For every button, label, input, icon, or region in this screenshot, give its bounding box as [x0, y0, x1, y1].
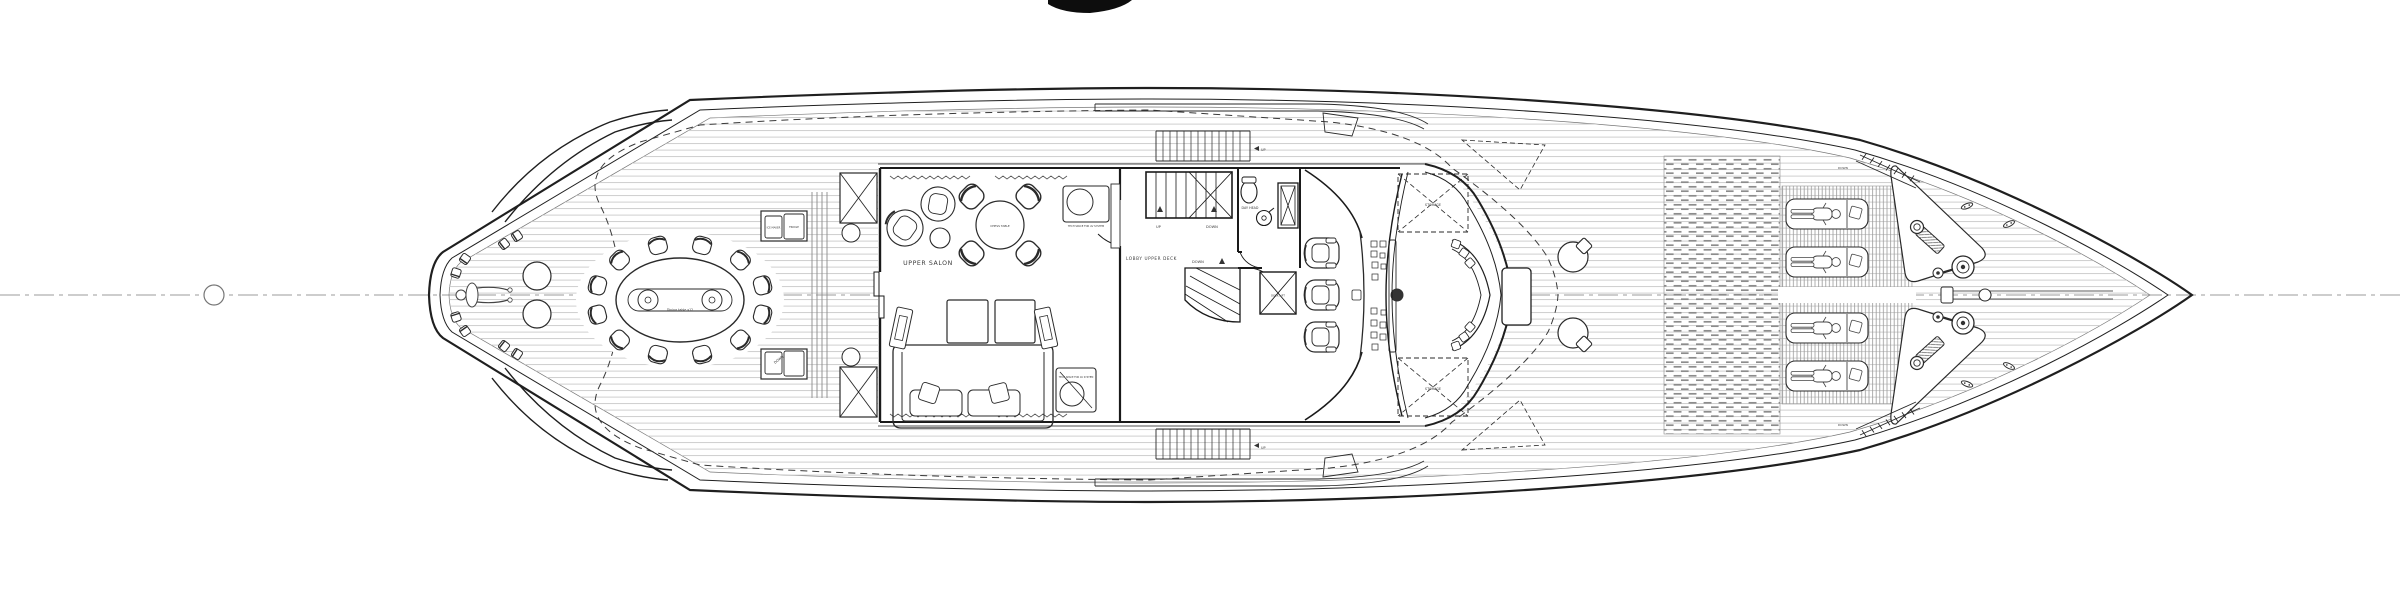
bow-down-label: DOWN [1838, 423, 1848, 427]
upper-salon-label: UPPER SALON [903, 260, 953, 267]
aft-door-leaf [879, 296, 884, 318]
aft-door-leaf [874, 272, 879, 296]
dining-table [616, 258, 744, 342]
ice-maker-label: ICE MAKER [767, 226, 781, 230]
chess-table-label: CHESS TABLE [990, 224, 1010, 228]
dining-area: Dining table x12 [576, 232, 784, 368]
sunbathing-area [1664, 156, 1916, 434]
center-walkway [1778, 287, 1916, 303]
sun-lounger-with-person [1786, 313, 1868, 343]
side-stair-up-label: UP [1261, 148, 1266, 152]
sun-lounger-with-person [1786, 361, 1868, 391]
stair-up-label: UP [1156, 225, 1162, 229]
sun-lounger-with-person [1786, 199, 1868, 229]
helm-chair [1305, 322, 1340, 352]
coffee-table [947, 300, 988, 343]
sunpad-mat-grid [1664, 156, 1780, 434]
storage-label: STORAGE [1425, 387, 1441, 391]
dining-table-label: Dining table x12 [667, 308, 693, 312]
side-table [930, 228, 950, 248]
deck-lift-label: DECK LIFT [1271, 294, 1285, 298]
foredeck-table [1502, 268, 1531, 325]
helm-chair [1305, 238, 1340, 268]
stair-down-label: DOWN [1206, 225, 1218, 229]
tech-space-label: TECH SPACE FOR AV SYSTEM [1068, 224, 1104, 228]
side-stair-up-label: UP [1261, 446, 1266, 450]
fridge-label: FRIDGE [789, 225, 799, 229]
deck-plan-drawing: Dining table x12 ICE MAKER FRIDGE DOWN [0, 0, 2400, 598]
day-head-label: DAY HEAD [1242, 206, 1259, 210]
mast-top-silhouette [1048, 0, 1132, 13]
cocktail-table [523, 300, 551, 328]
tech-space-label: TECH SPACE FOR AV SYSTEM [1059, 376, 1094, 379]
helm-chair [1305, 280, 1340, 310]
coffee-table [995, 300, 1035, 343]
dumbwaiter-box [1278, 183, 1298, 228]
lobby-label: LOBBY UPPER DECK [1126, 256, 1177, 261]
cocktail-table [523, 262, 551, 290]
curved-stair-down-label: DOWN [1192, 260, 1204, 264]
datum-circle [204, 285, 224, 305]
sun-lounger-with-person [1786, 247, 1868, 277]
interior-stair [1146, 172, 1232, 218]
storage-label: STORAGE [1425, 203, 1441, 207]
bow-down-label: DOWN [1838, 166, 1848, 170]
av-cabinet-starboard: TECH SPACE FOR AV SYSTEM [1056, 368, 1096, 412]
